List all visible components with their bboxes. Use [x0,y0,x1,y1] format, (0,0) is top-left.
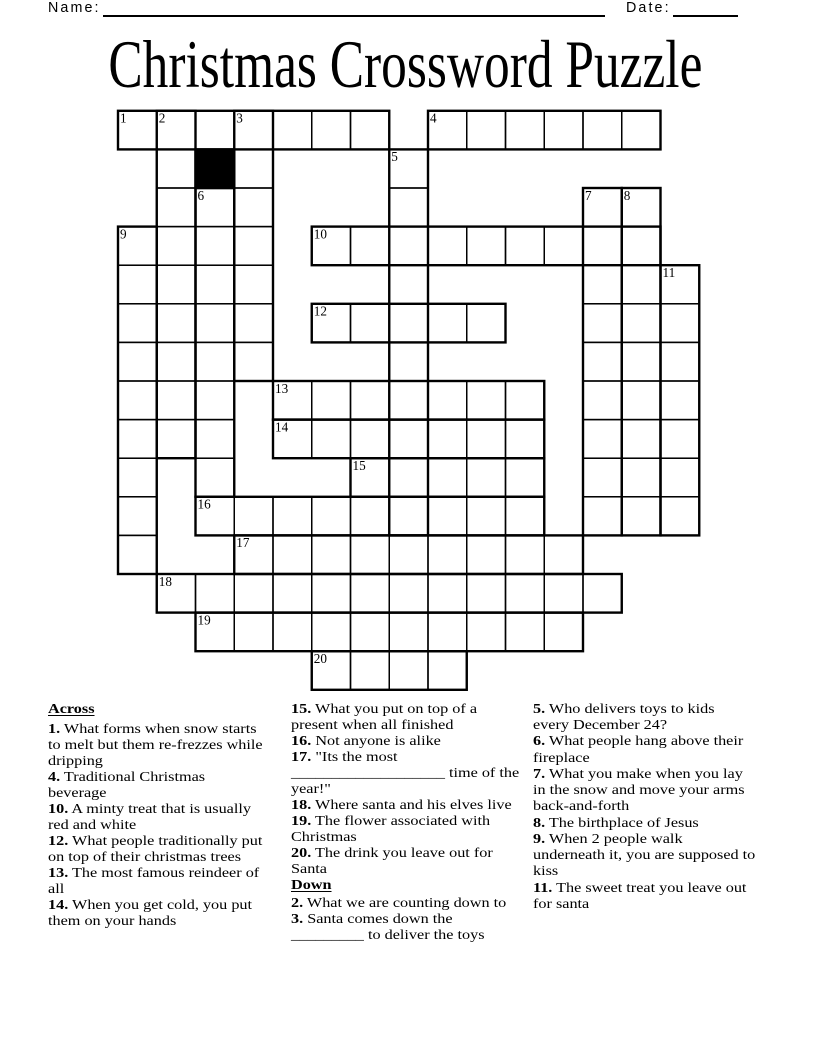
svg-text:13: 13 [275,381,289,396]
svg-text:8: 8 [624,188,631,203]
svg-text:5: 5 [391,149,398,164]
svg-text:1: 1 [120,111,127,126]
svg-text:4: 4 [430,111,437,126]
svg-text:3: 3 [236,111,243,126]
svg-text:6: 6 [198,188,205,203]
svg-text:16: 16 [198,497,212,512]
svg-text:19: 19 [198,612,212,627]
svg-text:15: 15 [353,458,367,473]
svg-text:10: 10 [314,226,328,241]
svg-text:2: 2 [159,111,166,126]
svg-text:9: 9 [120,226,127,241]
svg-text:14: 14 [275,419,289,434]
svg-text:17: 17 [236,535,250,550]
svg-text:11: 11 [663,265,676,280]
svg-text:18: 18 [159,574,173,589]
svg-text:12: 12 [314,304,327,319]
svg-text:20: 20 [314,651,328,666]
svg-text:7: 7 [585,188,592,203]
